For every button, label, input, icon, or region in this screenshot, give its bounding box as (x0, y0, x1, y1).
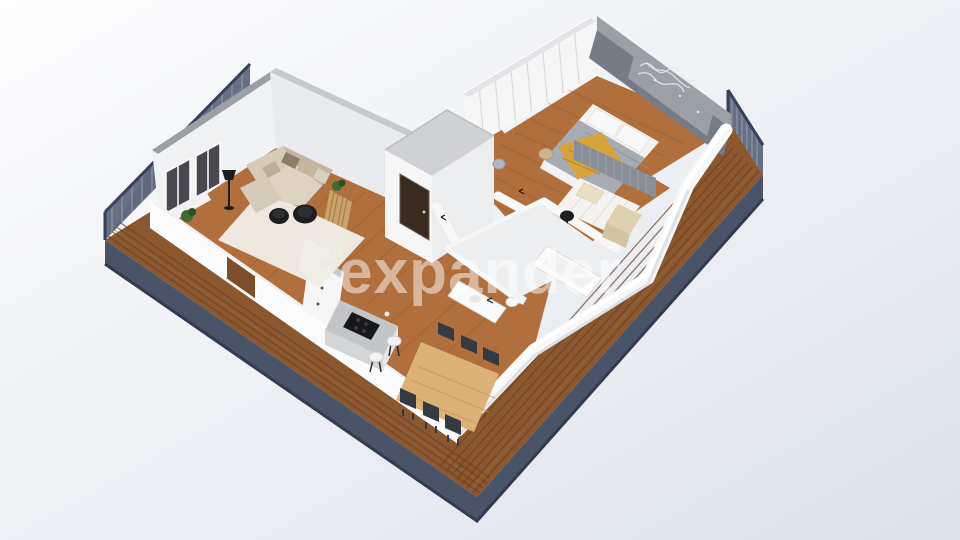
door-handle (423, 211, 426, 214)
coffee-table (293, 205, 317, 224)
floorplan-render: expander (0, 0, 960, 540)
coffee-table (269, 208, 289, 224)
floorplan-svg: expander (0, 0, 960, 540)
hallway-stool (493, 159, 505, 169)
bedside-stool (539, 149, 553, 160)
watermark-text: expander (338, 238, 622, 307)
faucet (385, 312, 390, 317)
